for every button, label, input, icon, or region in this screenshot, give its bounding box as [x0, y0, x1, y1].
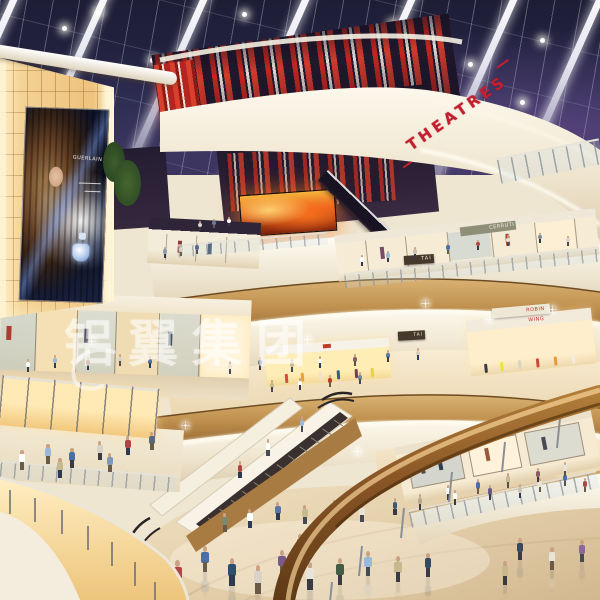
wooden-handrail	[284, 390, 600, 600]
foreground-rails	[0, 0, 600, 600]
watermark-text: 铝翼集团	[64, 304, 320, 376]
mall-atrium-rendering: THEATRES TAI TAI TAI TAI CERRUTI 1881 RO…	[0, 0, 600, 600]
